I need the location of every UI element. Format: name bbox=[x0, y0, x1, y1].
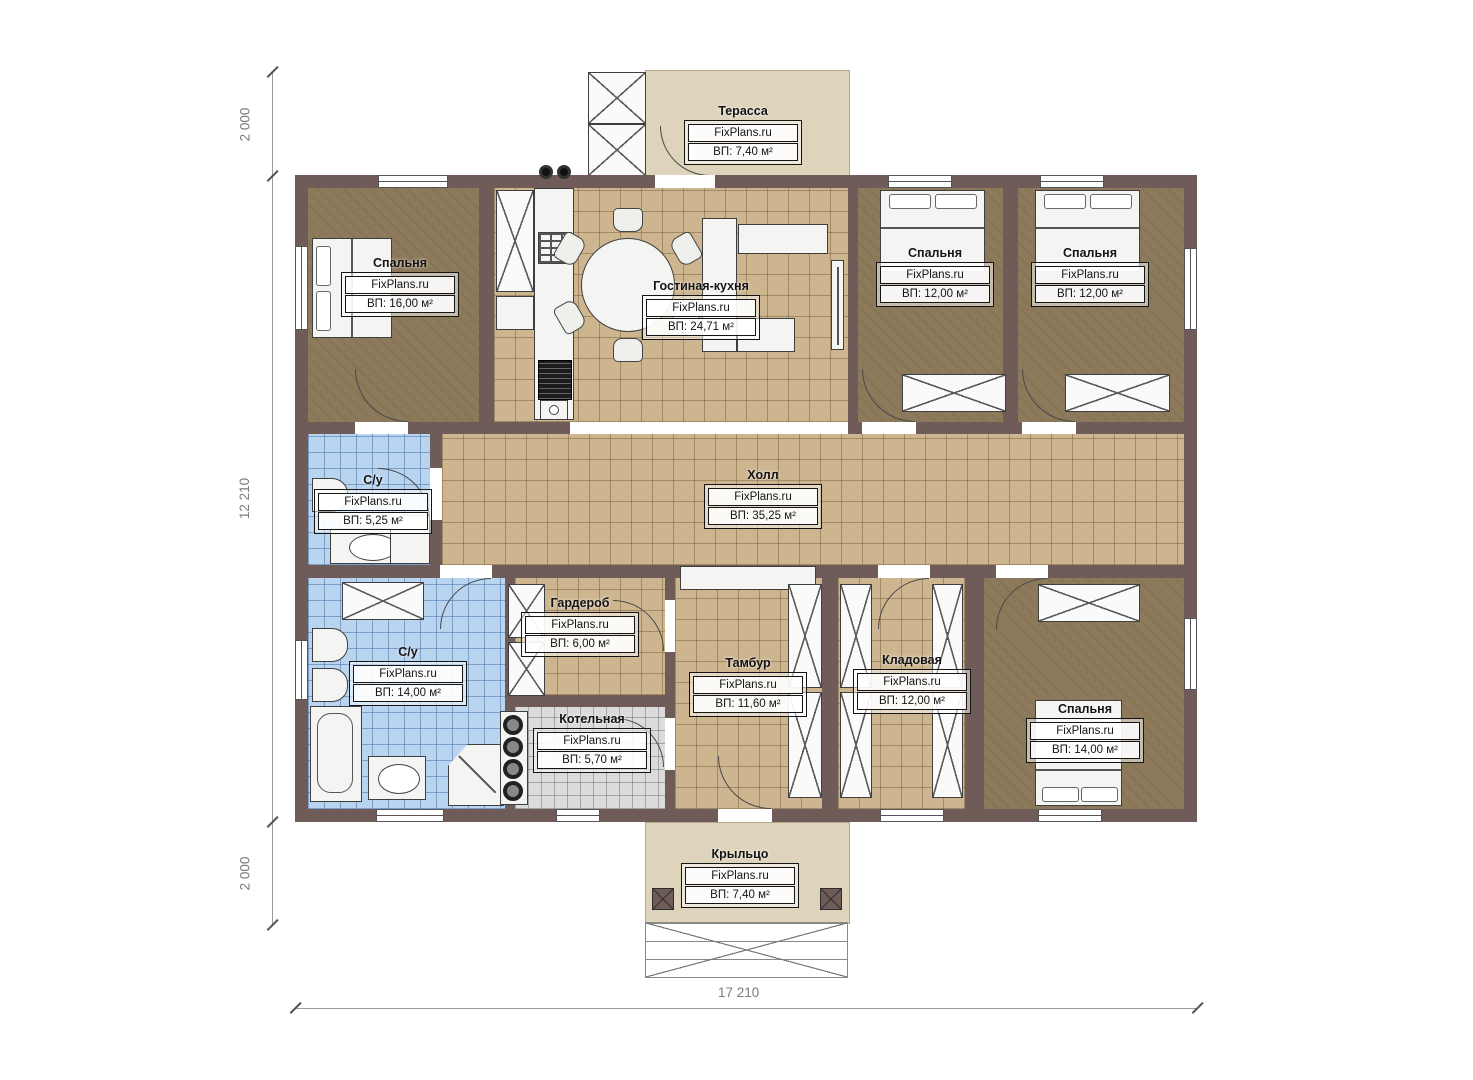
room-area: ВП: 5,25 м² bbox=[318, 512, 428, 530]
door-opening bbox=[1022, 422, 1076, 434]
room-area: ВП: 24,71 м² bbox=[646, 318, 756, 336]
bidet bbox=[312, 668, 348, 702]
dimension-label: 2 000 bbox=[237, 108, 252, 142]
label-bedroom-1: Спальня FixPlans.ru ВП: 16,00 м² bbox=[341, 256, 459, 317]
wardrobe-closet bbox=[342, 582, 424, 620]
door-opening bbox=[665, 718, 675, 770]
room-area: ВП: 7,40 м² bbox=[688, 143, 798, 161]
room-area: ВП: 14,00 м² bbox=[353, 684, 463, 702]
room-area: ВП: 12,00 м² bbox=[1035, 285, 1145, 303]
window bbox=[1184, 618, 1197, 690]
dimension-label: 2 000 bbox=[237, 857, 252, 891]
room-title: Спальня bbox=[1026, 702, 1144, 716]
terrace-door-opening bbox=[655, 175, 715, 188]
wardrobe-closet bbox=[496, 190, 534, 292]
stove-burner-icon bbox=[539, 165, 553, 179]
brand-watermark: FixPlans.ru bbox=[646, 299, 756, 317]
room-title: С/у bbox=[314, 473, 432, 487]
terrace-stairs bbox=[588, 124, 646, 176]
washing-machine-icon bbox=[503, 781, 523, 801]
room-area: ВП: 5,70 м² bbox=[537, 751, 647, 769]
brand-watermark: FixPlans.ru bbox=[318, 493, 428, 511]
boiler-icon bbox=[503, 715, 523, 735]
room-title: Спальня bbox=[876, 246, 994, 260]
room-area: ВП: 7,40 м² bbox=[685, 886, 795, 904]
label-bathroom-large: С/у FixPlans.ru ВП: 14,00 м² bbox=[349, 645, 467, 706]
bathtub bbox=[310, 706, 362, 802]
toilet bbox=[312, 628, 348, 662]
brand-watermark: FixPlans.ru bbox=[688, 124, 798, 142]
window bbox=[1040, 175, 1104, 188]
terrace-stairs bbox=[588, 72, 646, 124]
wardrobe-closet bbox=[1065, 374, 1170, 412]
brand-watermark: FixPlans.ru bbox=[693, 676, 803, 694]
label-bedroom-2: Спальня FixPlans.ru ВП: 12,00 м² bbox=[876, 246, 994, 307]
room-title: Холл bbox=[704, 468, 822, 482]
boiler-icon bbox=[503, 759, 523, 779]
boiler-icon bbox=[503, 737, 523, 757]
window bbox=[556, 809, 600, 822]
brand-watermark: FixPlans.ru bbox=[345, 276, 455, 294]
label-porch: Крыльцо FixPlans.ru ВП: 7,40 м² bbox=[681, 847, 799, 908]
brand-watermark: FixPlans.ru bbox=[353, 665, 463, 683]
sink-vanity bbox=[368, 756, 426, 800]
window bbox=[888, 175, 952, 188]
door-opening bbox=[996, 565, 1048, 578]
floor-plan-canvas: Терасса FixPlans.ru ВП: 7,40 м² Спальня … bbox=[0, 0, 1473, 1080]
label-terrace: Терасса FixPlans.ru ВП: 7,40 м² bbox=[684, 104, 802, 165]
room-title: Крыльцо bbox=[681, 847, 799, 861]
door-opening bbox=[665, 600, 675, 652]
label-boiler-room: Котельная FixPlans.ru ВП: 5,70 м² bbox=[533, 712, 651, 773]
window bbox=[880, 809, 944, 822]
dishwasher-icon bbox=[538, 360, 572, 400]
room-title: Гардероб bbox=[521, 596, 639, 610]
door-opening bbox=[862, 422, 916, 434]
entry-door-opening bbox=[718, 809, 772, 822]
window bbox=[376, 809, 444, 822]
stove-burner-icon bbox=[557, 165, 571, 179]
brand-watermark: FixPlans.ru bbox=[857, 673, 967, 691]
brand-watermark: FixPlans.ru bbox=[880, 266, 990, 284]
room-title: Гостиная-кухня bbox=[642, 279, 760, 293]
room-area: ВП: 11,60 м² bbox=[693, 695, 803, 713]
kitchen-sink bbox=[540, 400, 568, 420]
room-title: С/у bbox=[349, 645, 467, 659]
room-area: ВП: 14,00 м² bbox=[1030, 741, 1140, 759]
room-area: ВП: 12,00 м² bbox=[880, 285, 990, 303]
label-bedroom-3: Спальня FixPlans.ru ВП: 12,00 м² bbox=[1031, 246, 1149, 307]
chair bbox=[613, 338, 643, 362]
porch-column bbox=[820, 888, 842, 910]
window bbox=[295, 640, 308, 700]
brand-watermark: FixPlans.ru bbox=[537, 732, 647, 750]
porch-steps bbox=[645, 922, 848, 978]
label-wardrobe: Гардероб FixPlans.ru ВП: 6,00 м² bbox=[521, 596, 639, 657]
label-bedroom-4: Спальня FixPlans.ru ВП: 14,00 м² bbox=[1026, 702, 1144, 763]
room-area: ВП: 12,00 м² bbox=[857, 692, 967, 710]
room-title: Тамбур bbox=[689, 656, 807, 670]
brand-watermark: FixPlans.ru bbox=[1035, 266, 1145, 284]
window bbox=[1184, 248, 1197, 330]
label-vestibule: Тамбур FixPlans.ru ВП: 11,60 м² bbox=[689, 656, 807, 717]
label-storage: Кладовая FixPlans.ru ВП: 12,00 м² bbox=[853, 653, 971, 714]
brand-watermark: FixPlans.ru bbox=[685, 867, 795, 885]
dimension-line-left bbox=[272, 72, 273, 925]
fridge bbox=[496, 296, 534, 330]
room-title: Спальня bbox=[341, 256, 459, 270]
wardrobe-closet bbox=[902, 374, 1006, 412]
room-title: Кладовая bbox=[853, 653, 971, 667]
wardrobe-closet bbox=[1038, 584, 1140, 622]
door-opening bbox=[878, 565, 930, 578]
tv-screen bbox=[831, 260, 844, 350]
door-opening bbox=[355, 422, 408, 434]
dimension-label: 12 210 bbox=[237, 478, 252, 519]
window bbox=[1038, 809, 1102, 822]
label-bathroom-small: С/у FixPlans.ru ВП: 5,25 м² bbox=[314, 473, 432, 534]
label-living-kitchen: Гостиная-кухня FixPlans.ru ВП: 24,71 м² bbox=[642, 279, 760, 340]
room-area: ВП: 35,25 м² bbox=[708, 507, 818, 525]
room-area: ВП: 16,00 м² bbox=[345, 295, 455, 313]
door-opening bbox=[440, 565, 492, 578]
brand-watermark: FixPlans.ru bbox=[1030, 722, 1140, 740]
window bbox=[378, 175, 448, 188]
room-title: Спальня bbox=[1031, 246, 1149, 260]
open-transition bbox=[570, 422, 848, 434]
dimension-label: 17 210 bbox=[718, 985, 759, 1000]
dimension-line-bottom bbox=[295, 1008, 1197, 1009]
chair bbox=[613, 208, 643, 232]
brand-watermark: FixPlans.ru bbox=[525, 616, 635, 634]
porch-column bbox=[652, 888, 674, 910]
tv-console bbox=[738, 224, 828, 254]
label-hall: Холл FixPlans.ru ВП: 35,25 м² bbox=[704, 468, 822, 529]
room-area: ВП: 6,00 м² bbox=[525, 635, 635, 653]
room-title: Терасса bbox=[684, 104, 802, 118]
brand-watermark: FixPlans.ru bbox=[708, 488, 818, 506]
room-title: Котельная bbox=[533, 712, 651, 726]
window bbox=[295, 246, 308, 330]
